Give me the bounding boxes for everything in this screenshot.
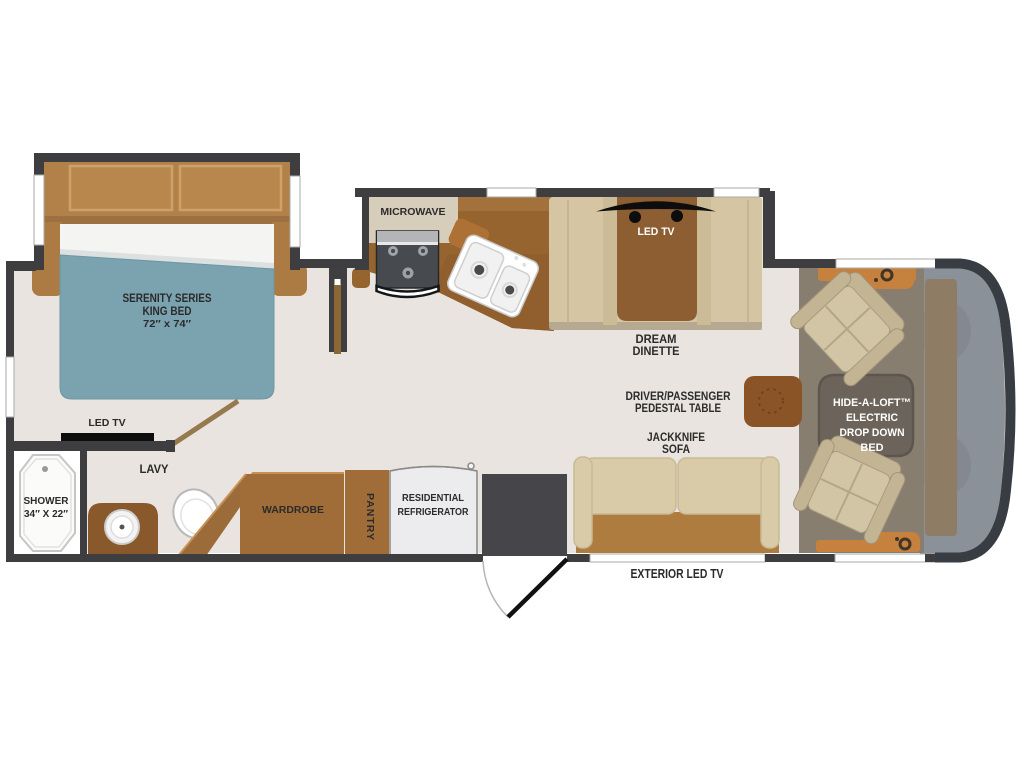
svg-text:REFRIGERATOR: REFRIGERATOR <box>398 506 469 518</box>
svg-text:DROP DOWN: DROP DOWN <box>840 427 905 439</box>
svg-text:LED TV: LED TV <box>638 226 676 238</box>
svg-text:BED: BED <box>860 442 883 454</box>
svg-text:SHOWER: SHOWER <box>24 496 70 507</box>
svg-text:72″ x 74″: 72″ x 74″ <box>143 319 191 330</box>
svg-text:WARDROBE: WARDROBE <box>262 504 324 516</box>
svg-text:KING BED: KING BED <box>143 306 192 318</box>
svg-text:LED TV: LED TV <box>88 417 125 429</box>
svg-text:DINETTE: DINETTE <box>633 344 680 358</box>
svg-text:HIDE-A-LOFT™: HIDE-A-LOFT™ <box>833 397 911 409</box>
svg-text:PANTRY: PANTRY <box>364 493 376 541</box>
svg-text:SOFA: SOFA <box>662 442 690 456</box>
svg-text:EXTERIOR LED TV: EXTERIOR LED TV <box>631 566 724 581</box>
svg-text:SERENITY SERIES: SERENITY SERIES <box>123 293 212 305</box>
svg-text:34″ X 22″: 34″ X 22″ <box>24 509 68 520</box>
svg-text:MICROWAVE: MICROWAVE <box>380 206 445 218</box>
svg-text:ELECTRIC: ELECTRIC <box>846 412 898 424</box>
svg-text:RESIDENTIAL: RESIDENTIAL <box>402 492 465 504</box>
svg-text:PEDESTAL TABLE: PEDESTAL TABLE <box>635 401 721 415</box>
svg-text:LAVY: LAVY <box>140 462 169 476</box>
